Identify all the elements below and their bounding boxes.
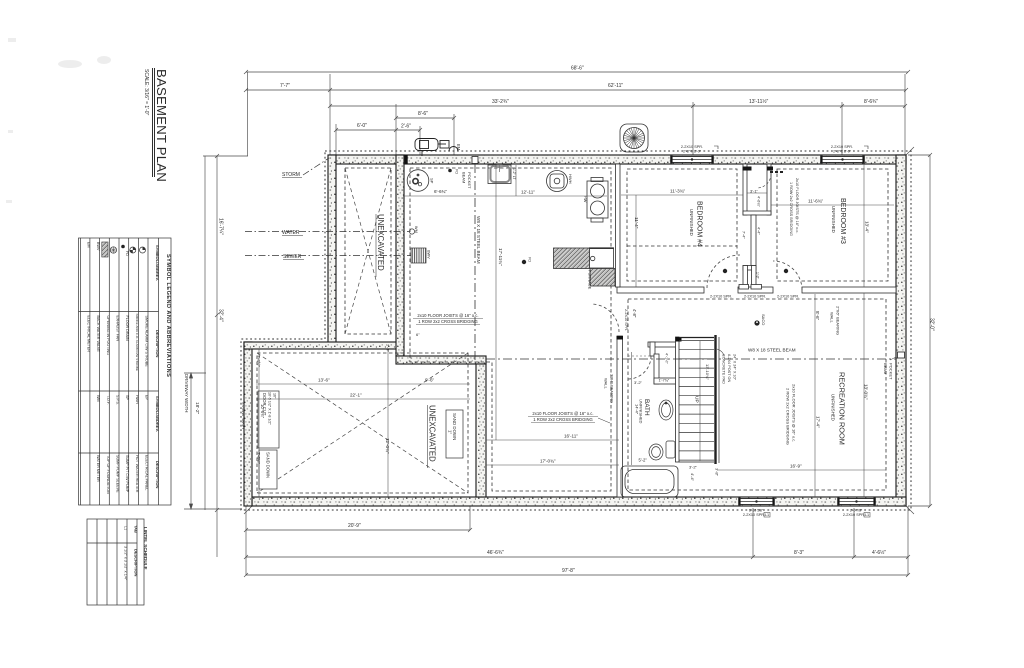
svg-text:2x10 FLOOR JOISTS @ 16" o.c.: 2x10 FLOOR JOISTS @ 16" o.c. [792, 384, 797, 442]
svg-text:DESCRIPTION: DESCRIPTION [134, 549, 139, 576]
svg-text:BASEMENT PLAN: BASEMENT PLAN [154, 69, 169, 182]
svg-text:17'-11¾": 17'-11¾" [498, 248, 503, 266]
svg-text:46'-6¾": 46'-6¾" [487, 550, 504, 556]
svg-text:SACO: SACO [761, 314, 766, 325]
svg-text:1 ROW 2x2 CROSS BRIDGING: 1 ROW 2x2 CROSS BRIDGING [418, 319, 478, 324]
svg-text:68'-6": 68'-6" [571, 66, 584, 72]
svg-text:3'-1": 3'-1" [750, 189, 759, 194]
svg-text:6'-10 5/8": 6'-10 5/8" [749, 509, 764, 513]
svg-text:4'-6¾": 4'-6¾" [757, 196, 761, 207]
svg-text:1 ROW 2x2 CROSS BRIDGING: 1 ROW 2x2 CROSS BRIDGING [533, 417, 593, 422]
svg-text:W8 X 18 STEEL BEAM: W8 X 18 STEEL BEAM [748, 348, 796, 353]
svg-text:EP: EP [145, 395, 149, 400]
svg-text:HOT WATER HEATER: HOT WATER HEATER [135, 455, 139, 493]
svg-text:1'-3": 1'-3" [756, 272, 760, 280]
svg-text:SAND DOWN: SAND DOWN [452, 413, 457, 440]
svg-text:S.P.S.: S.P.S. [116, 395, 120, 405]
svg-text:L1: L1 [124, 526, 128, 530]
svg-text:2'-8" X 2'-0": 2'-8" X 2'-0" [833, 150, 851, 154]
svg-text:2'-4": 2'-4" [386, 344, 391, 353]
svg-text:SYMBOL LEGEND AND ABBREVIATION: SYMBOL LEGEND AND ABBREVIATIONS [165, 254, 171, 377]
svg-text:2x10 FLOOR JOISTS @ 16" o.c.: 2x10 FLOOR JOISTS @ 16" o.c. [795, 178, 799, 233]
svg-text:SYMBOL/ABBREV.: SYMBOL/ABBREV. [155, 245, 160, 281]
svg-text:ELECTRICAL PANEL: ELECTRICAL PANEL [145, 455, 149, 490]
svg-text:WM: WM [414, 226, 418, 233]
svg-text:16'-7¼": 16'-7¼" [218, 218, 224, 235]
svg-text:LINTEL SCHEDULE: LINTEL SCHEDULE [143, 527, 148, 570]
svg-text:62'-11": 62'-11" [608, 83, 623, 89]
svg-text:6'-6¾": 6'-6¾" [434, 189, 447, 194]
svg-text:16'-9": 16'-9" [790, 464, 802, 469]
svg-text:13'-0¾": 13'-0¾" [864, 384, 869, 400]
svg-text:DESCRIPTION: DESCRIPTION [155, 330, 160, 357]
svg-text:14'-4": 14'-4" [635, 404, 640, 415]
svg-text:20'-9": 20'-9" [348, 523, 361, 529]
svg-text:FLOOR DRAIN: FLOOR DRAIN [125, 316, 129, 342]
svg-text:33'-2¾": 33'-2¾" [492, 99, 509, 105]
svg-text:6-2X4 POST ON: 6-2X4 POST ON [727, 354, 731, 382]
svg-text:13'-10¾": 13'-10¾" [705, 364, 710, 380]
svg-text:SMOKE ALARM C/W STROBE: SMOKE ALARM C/W STROBE [145, 316, 149, 368]
svg-text:11'-3¾": 11'-3¾" [670, 189, 686, 194]
svg-text:22'-1": 22'-1" [350, 393, 362, 398]
svg-text:1 ROW 2x2 CROSS BRIDGING: 1 ROW 2x2 CROSS BRIDGING [789, 182, 793, 236]
svg-text:7'-4½": 7'-4½" [256, 355, 261, 367]
svg-text:HWH: HWH [568, 174, 573, 184]
svg-text:UNFINISHED: UNFINISHED [831, 206, 836, 233]
svg-text:4'-4": 4'-4" [757, 227, 761, 235]
svg-text:8'-6": 8'-6" [418, 111, 428, 117]
svg-text:6'-0": 6'-0" [357, 123, 367, 129]
svg-text:SUMP PUMP SLEEVE: SUMP PUMP SLEEVE [116, 455, 120, 493]
svg-text:POCKET: POCKET [889, 363, 894, 380]
svg-text:WM: WM [96, 395, 100, 402]
svg-text:UNFINISHED: UNFINISHED [831, 394, 836, 421]
svg-text:1'-2" LT: 1'-2" LT [512, 168, 516, 179]
svg-text:16": 16" [273, 393, 277, 399]
svg-text:6": 6" [416, 332, 420, 337]
svg-text:WATER METER: WATER METER [96, 455, 100, 482]
svg-text:SP: SP [125, 395, 129, 400]
svg-text:2"X6" BEARING: 2"X6" BEARING [836, 306, 841, 335]
svg-text:DESCRIPTION: DESCRIPTION [155, 461, 160, 488]
svg-text:WATER: WATER [282, 230, 300, 236]
svg-text:3 1/2" x 3 1/2" x 1/4": 3 1/2" x 3 1/2" x 1/4" [124, 546, 128, 581]
svg-text:17'-0¾": 17'-0¾" [540, 459, 556, 464]
svg-text:HWH: HWH [135, 395, 139, 404]
svg-text:3'-8": 3'-8" [715, 468, 720, 477]
svg-text:BEAM: BEAM [883, 363, 888, 374]
svg-text:4'-6½": 4'-6½" [872, 549, 886, 556]
svg-text:SCALE: 3/16" = 1'-0": SCALE: 3/16" = 1'-0" [143, 69, 149, 116]
svg-text:17'-4": 17'-4" [816, 416, 821, 428]
svg-text:2-2X10 SPR.: 2-2X10 SPR. [744, 295, 766, 299]
svg-text:4'-8": 4'-8" [632, 309, 637, 318]
svg-text:FD: FD [455, 169, 459, 174]
svg-text:CONCRETE PAD: CONCRETE PAD [722, 354, 726, 384]
svg-text:BWV: BWV [96, 242, 100, 251]
svg-text:L1: L1 [765, 513, 769, 517]
svg-text:5'-2": 5'-2" [639, 458, 648, 463]
svg-text:1": 1" [448, 430, 453, 434]
svg-text:7'-8¾": 7'-8¾" [256, 452, 261, 464]
svg-text:13'-6": 13'-6" [318, 378, 330, 383]
svg-text:18'-2": 18'-2" [194, 402, 200, 415]
svg-text:11'-4": 11'-4" [634, 217, 639, 229]
svg-text:2'-8" X 2'-0": 2'-8" X 2'-0" [683, 150, 701, 154]
svg-text:7'-4": 7'-4" [742, 231, 746, 239]
svg-text:UNEXCAVATED: UNEXCAVATED [428, 405, 437, 462]
svg-text:W8 X 18 STEEL BEAM: W8 X 18 STEEL BEAM [476, 216, 481, 264]
svg-text:2'-0 7/8": 2'-0 7/8" [850, 509, 863, 513]
svg-text:SYMBOL/ABDREV.: SYMBOL/ABDREV. [155, 396, 160, 432]
svg-text:11'-6¾": 11'-6¾" [808, 199, 824, 204]
svg-text:16'-11": 16'-11" [564, 434, 578, 439]
svg-text:EM: EM [86, 242, 90, 248]
svg-text:2-2X10 SPR.: 2-2X10 SPR. [743, 513, 765, 517]
svg-text:UP: UP [694, 396, 700, 403]
svg-text:L1: L1 [865, 513, 869, 517]
svg-text:WALL: WALL [830, 312, 835, 324]
svg-text:UNFINISHED: UNFINISHED [689, 209, 694, 236]
svg-text:FURNACE: FURNACE [588, 270, 593, 290]
svg-text:12'-11": 12'-11" [521, 190, 535, 195]
svg-text:2-2X10 SPR.: 2-2X10 SPR. [624, 309, 628, 331]
svg-text:POCKET: POCKET [467, 172, 472, 189]
svg-text:9'-6": 9'-6" [425, 378, 435, 383]
svg-text:2'-6": 2'-6" [401, 124, 411, 130]
svg-text:4'-1½": 4'-1½" [665, 353, 669, 364]
svg-text:TAB: TAB [134, 525, 139, 533]
svg-text:SAND DOWN: SAND DOWN [266, 452, 271, 478]
svg-text:2-2X10 SPR.: 2-2X10 SPR. [843, 513, 865, 517]
svg-text:13'-11½": 13'-11½" [749, 98, 769, 105]
svg-text:BEDROOM #4: BEDROOM #4 [696, 201, 703, 247]
svg-text:T.O.F.: T.O.F. [106, 395, 110, 405]
svg-text:2x10 FLOOR JOISTS @ 16" o.c.: 2x10 FLOOR JOISTS @ 16" o.c. [532, 411, 593, 416]
svg-text:8'-3": 8'-3" [794, 550, 804, 556]
svg-text:2x10 FLOOR JOISTS @ 16" o.c.: 2x10 FLOOR JOISTS @ 16" o.c. [417, 313, 478, 318]
svg-text:8'-6": 8'-6" [815, 311, 820, 321]
svg-text:UNEXCAVATED: UNEXCAVATED [376, 214, 385, 271]
svg-text:3'-2": 3'-2" [634, 380, 643, 385]
svg-text:STORM: STORM [282, 172, 300, 178]
svg-text:10'-5 1/2" X 1'-8 1/2": 10'-5 1/2" X 1'-8 1/2" [268, 392, 272, 425]
svg-text:2-2X10 SPR.: 2-2X10 SPR. [681, 145, 703, 149]
svg-text:1'-7¾": 1'-7¾" [659, 379, 670, 383]
svg-text:2-2X10 SPR.: 2-2X10 SPR. [777, 295, 799, 299]
svg-text:24" X 24" X 10": 24" X 24" X 10" [733, 354, 737, 381]
svg-text:SEWER: SEWER [283, 254, 302, 260]
svg-text:SP: SP [430, 178, 435, 184]
svg-text:FD: FD [125, 251, 129, 256]
svg-text:2 ROW 2x2 CROSS BRIDGING: 2 ROW 2x2 CROSS BRIDGING [786, 388, 791, 445]
svg-text:12'-0¾": 12'-0¾" [385, 438, 390, 454]
svg-text:BWV: BWV [427, 250, 431, 259]
svg-text:97'-8": 97'-8" [562, 568, 575, 574]
svg-text:ELECTRICAL METER: ELECTRICAL METER [86, 316, 90, 353]
svg-text:RECREATION ROOM: RECREATION ROOM [838, 372, 847, 445]
svg-text:4'-4": 4'-4" [690, 473, 695, 482]
svg-text:FD: FD [528, 257, 532, 262]
svg-text:TOP OF FOUNDATION: TOP OF FOUNDATION [106, 455, 110, 494]
svg-text:10'-6¾": 10'-6¾" [260, 404, 265, 419]
svg-text:2-2X10 SPR.: 2-2X10 SPR. [831, 145, 853, 149]
svg-text:SUMP PIT C/W PUMP: SUMP PIT C/W PUMP [125, 455, 129, 493]
svg-text:DRIVEWAY WIDTH: DRIVEWAY WIDTH [184, 374, 189, 412]
svg-text:13'-4": 13'-4" [865, 221, 870, 233]
svg-text:2-2X10 SPR.: 2-2X10 SPR. [710, 295, 732, 299]
svg-text:HW: HW [583, 196, 587, 203]
svg-text:BEAM: BEAM [462, 172, 467, 183]
svg-text:2"X4" BEARING: 2"X4" BEARING [610, 374, 615, 403]
svg-text:SMOKE AND C.O. ALARM C/W STROB: SMOKE AND C.O. ALARM C/W STROBE [135, 314, 139, 371]
svg-text:3'-0 13/16" VERIFY: 3'-0 13/16" VERIFY [241, 402, 245, 430]
svg-text:EM: EM [456, 144, 461, 151]
svg-text:32'-4": 32'-4" [218, 309, 224, 322]
svg-text:WALL: WALL [604, 378, 609, 390]
svg-text:EXHAUST FAN: EXHAUST FAN [116, 316, 120, 342]
svg-text:8'-6¾": 8'-6¾" [864, 99, 878, 105]
svg-text:OPENING IN FOOTING: OPENING IN FOOTING [106, 316, 110, 356]
svg-text:7'-7": 7'-7" [280, 83, 290, 89]
svg-text:32'-0": 32'-0" [929, 318, 935, 331]
svg-text:BACK WATER VALVE: BACK WATER VALVE [96, 316, 100, 353]
svg-text:3'-2": 3'-2" [689, 465, 698, 470]
